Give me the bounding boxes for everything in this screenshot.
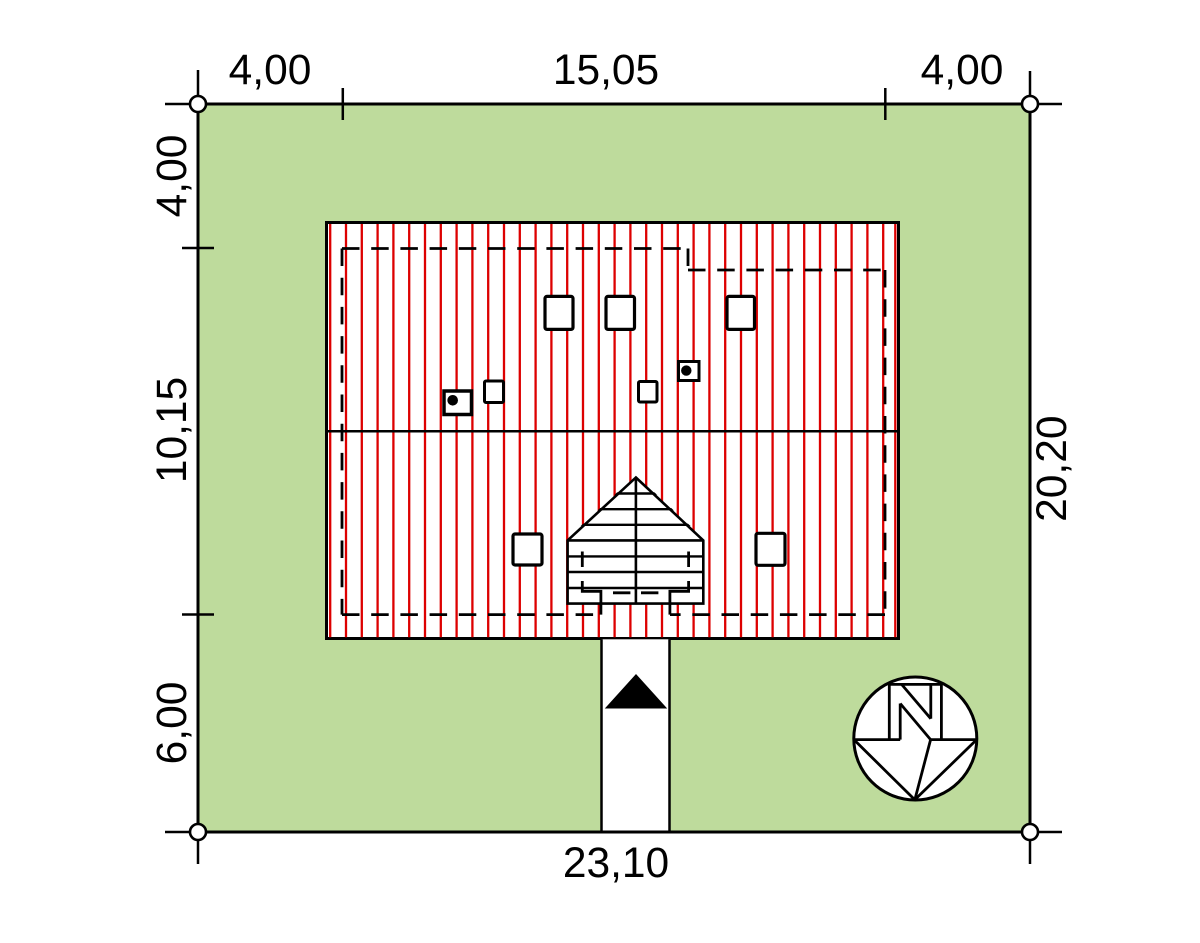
svg-text:4,00: 4,00 xyxy=(149,135,196,218)
svg-text:6,00: 6,00 xyxy=(149,682,196,765)
svg-text:23,10: 23,10 xyxy=(563,840,669,887)
svg-text:20,20: 20,20 xyxy=(1029,416,1076,522)
svg-text:4,00: 4,00 xyxy=(229,47,312,94)
svg-text:10,15: 10,15 xyxy=(149,377,196,483)
svg-text:15,05: 15,05 xyxy=(553,47,659,94)
svg-text:4,00: 4,00 xyxy=(921,47,1004,94)
